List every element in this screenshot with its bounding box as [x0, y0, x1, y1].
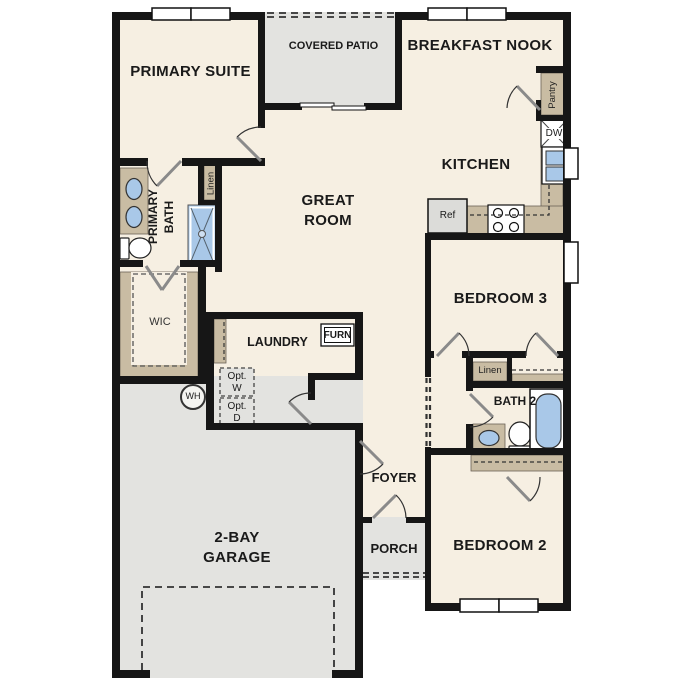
linen-hall-label: Linen [473, 365, 507, 377]
bedroom3-label: BEDROOM 3 [438, 289, 563, 309]
sliding-door-panel [332, 106, 366, 110]
bath2-label: BATH 2 [489, 394, 541, 409]
optional-washer-label: Opt. W [224, 371, 250, 394]
porch-steps [363, 573, 425, 577]
window [564, 242, 578, 283]
optional-dryer-label: Opt. D [224, 401, 250, 424]
dishwasher-label: DW [541, 127, 567, 140]
primary-bath-label: PRIMARY BATH [146, 190, 180, 244]
porch-label: PORCH [363, 541, 425, 558]
pantry-door-leaf [517, 86, 540, 110]
pantry-label: Pantry [547, 76, 559, 114]
covered-patio-label: COVERED PATIO [287, 39, 380, 53]
window [499, 599, 538, 612]
bedroom3-closet-door-leaf [536, 333, 558, 356]
hall-archway [427, 378, 431, 446]
window [460, 599, 499, 612]
window [191, 8, 230, 20]
sliding-door-panel [300, 103, 334, 107]
garage-label: 2-BAY GARAGE [182, 528, 292, 567]
floor-plan: PRIMARY SUITE COVERED PATIO BREAKFAST NO… [0, 0, 687, 687]
primary-suite-door-leaf [237, 137, 261, 161]
window [428, 8, 467, 20]
patio-open-edge [267, 13, 396, 17]
window [467, 8, 506, 20]
laundry-label: LAUNDRY [230, 334, 325, 350]
bedroom2-label: BEDROOM 2 [440, 536, 560, 556]
plan-geometry [0, 0, 687, 687]
window [564, 148, 578, 179]
window [152, 8, 191, 20]
great-room-label: GREAT ROOM [289, 191, 367, 230]
bedroom3-door-leaf [437, 333, 459, 356]
casework [120, 73, 567, 471]
bedroom2-closet-shelf [471, 455, 567, 471]
refrigerator-label: Ref [428, 209, 467, 222]
bedroom2-door-leaf [507, 477, 530, 501]
water-heater-label: WH [181, 391, 205, 403]
stove [488, 205, 524, 234]
furnace-label: FURN [321, 329, 354, 342]
shower [188, 205, 216, 264]
laundry-door-leaf [289, 402, 311, 424]
bath2-sink [479, 431, 499, 446]
garage-door-outline [142, 587, 334, 670]
front-door-leaf [373, 495, 396, 518]
foyer-label: FOYER [363, 470, 425, 487]
wic-label: WIC [135, 315, 185, 329]
kitchen-label: KITCHEN [420, 155, 532, 175]
primary-bath-door-leaf [157, 161, 181, 186]
linen-primary-label: Linen [206, 169, 217, 199]
garage-door-leaf [360, 441, 383, 464]
breakfast-nook-label: BREAKFAST NOOK [405, 36, 555, 56]
primary-suite-label: PRIMARY SUITE [128, 62, 253, 82]
